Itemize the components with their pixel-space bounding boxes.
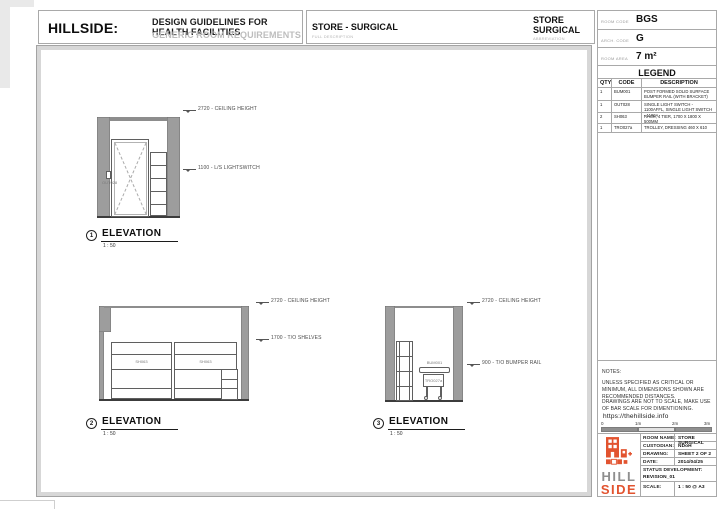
room-abbr-line1: STORE	[533, 15, 564, 25]
elevation3-number: 3	[373, 418, 384, 429]
tb-label: ROOM NAME:	[643, 436, 676, 441]
annotation-ceiling-elev2: 2720 - CEILING HEIGHT	[271, 298, 330, 304]
rack-a-elev2: SH063	[111, 342, 172, 399]
trolley-wheel-icon	[438, 396, 442, 400]
wall-right-elev3	[453, 306, 463, 402]
column-divider	[674, 434, 675, 441]
room-abbr-caption: ABBREVIATION	[533, 36, 565, 41]
bar-scale	[601, 427, 712, 432]
rack-post-line	[399, 342, 400, 400]
shelf-line	[222, 379, 237, 380]
tb-value: SHEET 2 OF 2	[678, 452, 711, 457]
level-marker-icon	[183, 108, 196, 114]
tb-status-label: STATUS DEVELOPMENT:	[643, 468, 702, 473]
wall-right-elev1	[167, 117, 180, 218]
wall-left-elev3	[385, 306, 395, 402]
elevation2-title: ELEVATION	[102, 416, 161, 427]
room-abbr-line2: SURGICAL	[533, 25, 580, 35]
legend-header: LEGEND	[598, 66, 716, 79]
legend-row: 1 OUT028 SINGLE LIGHT SWITCH - 1100AFFL,…	[598, 101, 716, 113]
legend-desc: TROLLEY, DRESSING 460 X 610	[642, 124, 716, 132]
door-frame	[111, 139, 149, 217]
scale-tick-1: 1m	[635, 421, 641, 426]
ceiling-elev3	[395, 306, 453, 308]
trolley-label: TRO027a	[424, 378, 443, 383]
notes-section: NOTES: UNLESS SPECIFIED AS CRITICAL OR M…	[598, 361, 716, 433]
ceiling-elev1	[110, 117, 167, 121]
legend-col-qty: QTY	[598, 79, 611, 87]
legend-code: OUT028	[612, 101, 641, 112]
wall-right-elev2	[241, 306, 249, 401]
shelf-line	[175, 354, 236, 355]
legend-qty: 2	[598, 113, 611, 123]
notes-line1: UNLESS SPECIFIED AS CRITICAL OR MINIMUM,…	[602, 380, 712, 401]
tb-row: DATE: 2014/04/25	[641, 458, 716, 466]
arch-code-label: ARCH. CODE	[601, 38, 629, 43]
shelf-line	[222, 388, 237, 389]
column-divider	[674, 482, 675, 497]
elevation2-underline	[101, 429, 178, 430]
light-switch-label: OUT028	[102, 180, 117, 185]
title-block-rows: ROOM NAME: STORE SURGICAL CUSTODIAN: NDo…	[641, 434, 716, 497]
tb-row: ROOM NAME: STORE SURGICAL	[641, 434, 716, 442]
logo-cell: HILL SIDE	[598, 434, 641, 497]
arch-code-row: ARCH. CODE G	[598, 30, 716, 48]
door-leaf	[114, 142, 147, 215]
hillside-logo-icon	[606, 437, 632, 465]
shelf-line	[112, 388, 171, 389]
room-area-label: ROOM AREA	[601, 56, 628, 61]
legend-qty: 1	[598, 124, 611, 132]
legend-row: 1 BUM001 POST FORMED SOLID SURFACE BUMPE…	[598, 88, 716, 101]
scale-tick-0: 0	[601, 421, 604, 426]
scale-tick-3: 3m	[704, 421, 710, 426]
legend-qty: 1	[598, 101, 611, 112]
room-full-caption: FULL DESCRIPTION	[312, 34, 353, 39]
tb-label: DRAWING:	[643, 452, 669, 457]
shelf-line	[151, 191, 166, 192]
elevation1-title: ELEVATION	[102, 228, 161, 239]
elevation1-scale: 1 : 50	[103, 243, 116, 249]
rack-b-label: SH063	[175, 359, 236, 364]
column-divider	[674, 458, 675, 465]
level-marker-icon	[467, 362, 480, 368]
room-code-row: ROOM CODE BGS	[598, 11, 716, 30]
legend-row: 2 SH063 RACK, 4 TIER, 1700 X 1800 X 500M…	[598, 113, 716, 124]
door-swing-icon	[115, 143, 146, 214]
level-marker-icon	[256, 300, 269, 306]
bar-scale-segment	[675, 427, 712, 432]
arch-code-value: G	[636, 33, 644, 44]
legend-empty-area	[598, 133, 716, 361]
shelf-line	[151, 178, 166, 179]
room-code-value: BGS	[636, 14, 658, 25]
elevation3-scale: 1 : 50	[390, 431, 403, 437]
elevation1-underline	[101, 241, 178, 242]
page-edge-bottom-line	[0, 500, 55, 501]
page-edge-bottom-notch	[54, 500, 55, 509]
right-column: ROOM CODE BGS ARCH. CODE G ROOM AREA 7 m…	[597, 10, 717, 497]
shelf-line	[112, 354, 171, 355]
logo-text-side: SIDE	[598, 483, 640, 496]
tb-row: CUSTODIAN: NDoH	[641, 442, 716, 450]
rack-post-line	[409, 342, 410, 400]
ceiling-elev2	[104, 306, 241, 308]
bumper-rail-label: BUM001	[419, 360, 450, 365]
legend-col-header: QTY CODE DESCRIPTION	[598, 79, 716, 88]
column-divider	[674, 442, 675, 449]
legend-qty: 1	[598, 88, 611, 100]
room-area-row: ROOM AREA 7 m²	[598, 48, 716, 66]
elevation2-number: 2	[86, 418, 97, 429]
elevation2-scale: 1 : 50	[103, 431, 116, 437]
shelf-line	[151, 165, 166, 166]
room-area-value: 7 m²	[636, 51, 657, 62]
tb-status-value: REVISION_01	[643, 475, 675, 480]
bar-scale-segment	[638, 427, 675, 432]
wall-left-elev1	[97, 117, 110, 218]
annotation-ceiling-elev3: 2720 - CEILING HEIGHT	[482, 298, 541, 304]
level-marker-icon	[467, 300, 480, 306]
room-code-label: ROOM CODE	[601, 19, 629, 24]
legend-code: BUM001	[612, 88, 641, 100]
elevation3-title: ELEVATION	[389, 416, 448, 427]
room-full-name: STORE - SURGICAL	[312, 22, 398, 32]
legend-title: LEGEND	[598, 66, 716, 78]
page-edge-left	[0, 0, 10, 88]
annotation-bumper-elev3: 900 - T/O BUMPER RAIL	[482, 360, 541, 366]
notes-heading: NOTES:	[602, 369, 621, 376]
legend-col-code: CODE	[612, 79, 641, 87]
sheet-canvas: HILLSIDE: DESIGN GUIDELINES FOR HEALTH F…	[0, 0, 720, 509]
tb-row: DRAWING: SHEET 2 OF 2	[641, 450, 716, 458]
column-divider	[674, 450, 675, 457]
brand-text: HILLSIDE:	[48, 20, 118, 36]
legend-code: SH063	[612, 113, 641, 123]
header-brand-box: HILLSIDE: DESIGN GUIDELINES FOR HEALTH F…	[38, 10, 303, 44]
trolley-top-elev3: TRO027a	[423, 374, 444, 387]
tb-value: 2014/04/25	[678, 460, 703, 465]
legend-desc: SINGLE LIGHT SWITCH - 1100AFFL, SINGLE L…	[642, 101, 716, 112]
shelf-line	[112, 369, 171, 370]
header-room-box: STORE - SURGICAL FULL DESCRIPTION STORE …	[306, 10, 595, 44]
level-marker-icon	[183, 167, 196, 173]
legend-row: 1 TRO027a TROLLEY, DRESSING 460 X 610	[598, 124, 716, 133]
elevation1-number: 1	[86, 230, 97, 241]
annotation-switch-elev1: 1100 - L/S LIGHTSWITCH	[198, 165, 260, 171]
shelf-line	[151, 204, 166, 205]
legend-col-desc: DESCRIPTION	[642, 79, 716, 87]
rack-elev1	[150, 152, 167, 216]
annotation-shelves-elev2: 1700 - T/O SHELVES	[271, 335, 322, 341]
legend-desc: RACK, 4 TIER, 1700 X 1800 X 500MM	[642, 113, 716, 123]
rack-a-label: SH063	[112, 359, 171, 364]
rack-side-elev3	[396, 341, 413, 401]
annotation-ceiling-elev1: 2720 - CEILING HEIGHT	[198, 106, 257, 112]
hillside-url-link[interactable]: https://thehillside.info	[603, 413, 669, 420]
elevation3-underline	[388, 429, 465, 430]
light-switch	[106, 171, 111, 179]
tb-scale-label: SCALE:	[643, 485, 661, 490]
level-marker-icon	[256, 337, 269, 343]
scale-tick-2: 2m	[672, 421, 678, 426]
bar-scale-segment	[601, 427, 638, 432]
tb-value: NDoH	[678, 444, 692, 449]
legend-desc: POST FORMED SOLID SURFACE BUMPER RAIL (W…	[642, 88, 716, 100]
notes-line2: DRAWINGS ARE NOT TO SCALE, MAKE USE OF B…	[602, 399, 712, 413]
tb-scale-row: SCALE: 1 : 50 @ A3	[641, 482, 716, 497]
wall-corner-elev2	[99, 306, 111, 332]
trolley-wheel-icon	[424, 396, 428, 400]
tb-scale-value: 1 : 50 @ A3	[678, 485, 705, 490]
legend-code: TRO027a	[612, 124, 641, 132]
tb-label: CUSTODIAN:	[643, 444, 674, 449]
tb-status-row: STATUS DEVELOPMENT: REVISION_01	[641, 466, 716, 482]
trolley-elev2	[221, 369, 238, 400]
bumper-rail	[419, 367, 450, 373]
title-block: HILL SIDE ROOM NAME: STORE SURGICAL CUST…	[598, 433, 716, 497]
tb-label: DATE:	[643, 460, 658, 465]
doc-subtitle: GENERIC ROOM REQUIREMENTS	[152, 30, 301, 40]
